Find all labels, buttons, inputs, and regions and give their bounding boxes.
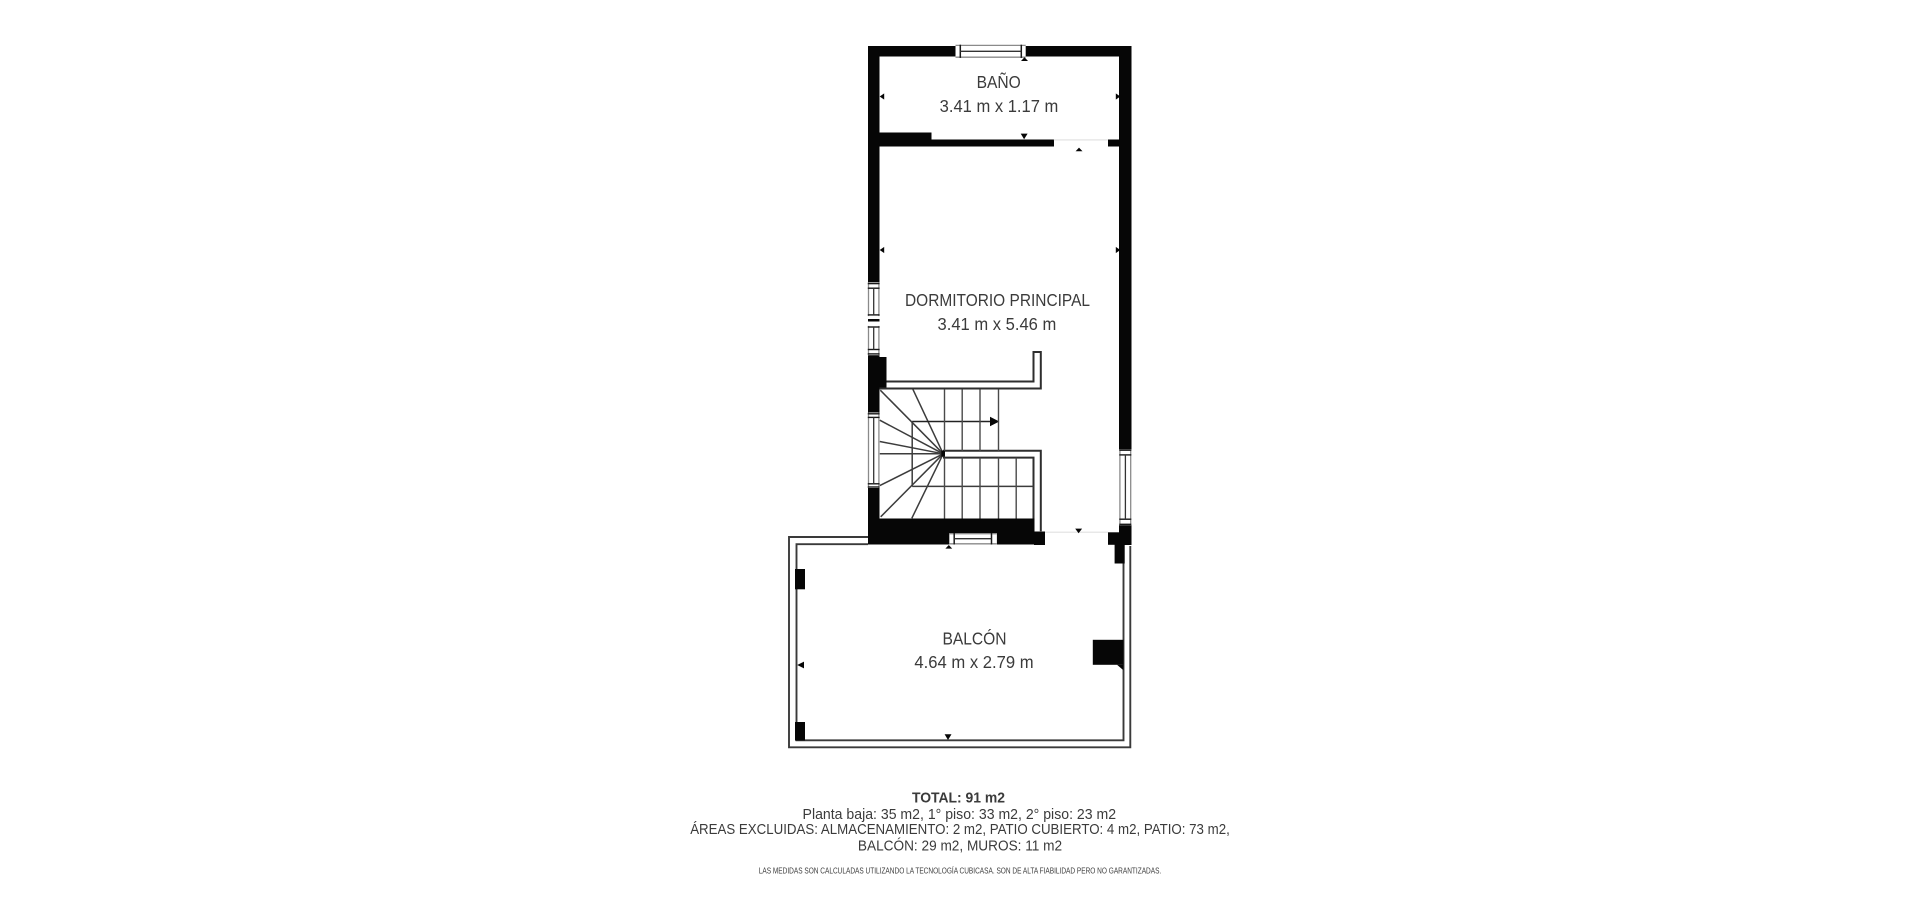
svg-text:BAÑO: BAÑO — [977, 71, 1021, 92]
svg-text:4.64 m x 2.79 m: 4.64 m x 2.79 m — [914, 652, 1033, 672]
svg-text:TOTAL: 91 m2: TOTAL: 91 m2 — [912, 791, 1005, 807]
svg-text:LAS MEDIDAS SON CALCULADAS UTI: LAS MEDIDAS SON CALCULADAS UTILIZANDO LA… — [759, 866, 1162, 876]
svg-text:3.41 m x 1.17 m: 3.41 m x 1.17 m — [940, 96, 1059, 116]
svg-text:Planta baja: 35 m2, 1° piso: 3: Planta baja: 35 m2, 1° piso: 33 m2, 2° p… — [803, 807, 1117, 823]
svg-text:3.41 m x 5.46 m: 3.41 m x 5.46 m — [938, 314, 1057, 334]
svg-text:BALCÓN: BALCÓN — [942, 628, 1006, 649]
svg-text:ÁREAS EXCLUIDAS: ALMACENAMIENT: ÁREAS EXCLUIDAS: ALMACENAMIENTO: 2 m2, P… — [690, 821, 1230, 838]
svg-text:DORMITORIO PRINCIPAL: DORMITORIO PRINCIPAL — [905, 290, 1090, 310]
svg-text:BALCÓN: 29 m2, MUROS: 11 m2: BALCÓN: 29 m2, MUROS: 11 m2 — [858, 837, 1062, 854]
